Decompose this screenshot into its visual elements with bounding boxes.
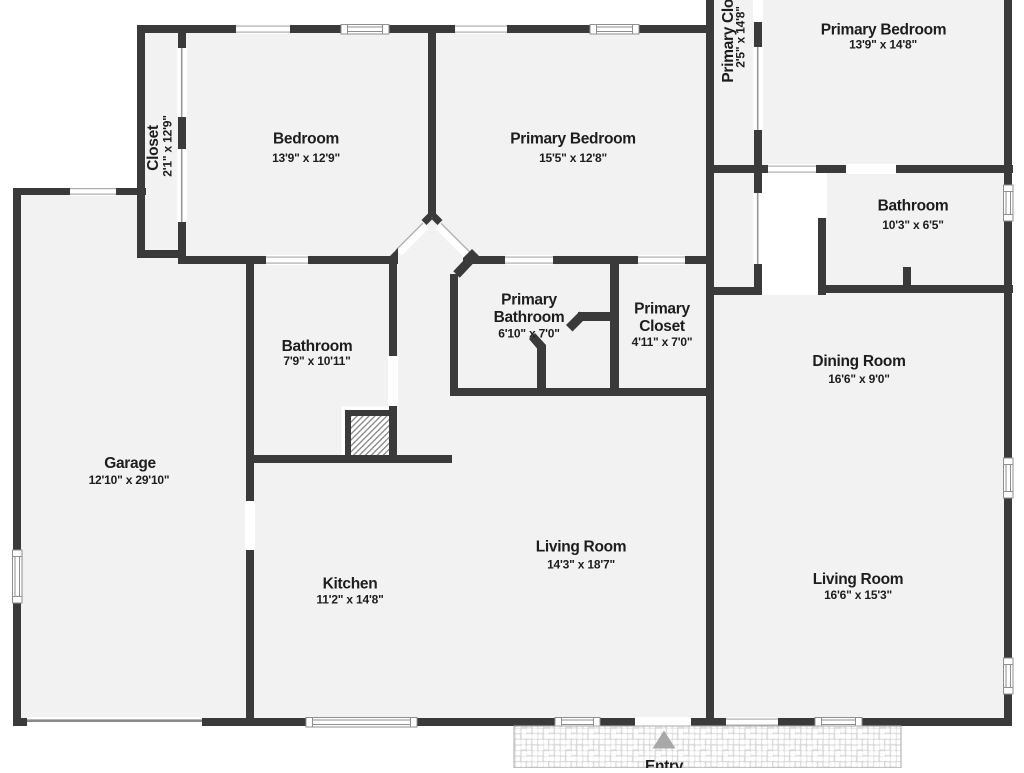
svg-text:Bathroom: Bathroom <box>878 198 949 215</box>
svg-text:Primary: Primary <box>501 292 557 309</box>
svg-text:Living Room: Living Room <box>536 539 627 556</box>
svg-text:Closet: Closet <box>145 125 162 171</box>
svg-text:10'3" x 6'5": 10'3" x 6'5" <box>882 218 943 232</box>
svg-text:16'6" x 15'3": 16'6" x 15'3" <box>824 588 892 602</box>
svg-text:6'10" x 7'0": 6'10" x 7'0" <box>498 327 559 341</box>
svg-text:Bedroom: Bedroom <box>273 131 339 148</box>
svg-text:13'9" x 14'8": 13'9" x 14'8" <box>849 38 917 52</box>
svg-text:Primary Bedroom: Primary Bedroom <box>821 22 947 39</box>
svg-text:Bathroom: Bathroom <box>282 338 353 355</box>
svg-text:2'5" x 14'8": 2'5" x 14'8" <box>734 6 748 67</box>
svg-text:14'3" x 18'7": 14'3" x 18'7" <box>547 558 615 572</box>
svg-text:2'1" x 12'9": 2'1" x 12'9" <box>161 115 175 176</box>
svg-text:Dining Room: Dining Room <box>812 353 905 370</box>
svg-text:Kitchen: Kitchen <box>323 576 378 593</box>
svg-text:15'5" x 12'8": 15'5" x 12'8" <box>539 151 607 165</box>
svg-text:Garage: Garage <box>104 455 156 472</box>
svg-text:Living Room: Living Room <box>813 571 904 588</box>
svg-text:Bathroom: Bathroom <box>494 309 565 326</box>
svg-text:16'6" x 9'0": 16'6" x 9'0" <box>828 372 889 386</box>
svg-text:4'11" x 7'0": 4'11" x 7'0" <box>632 335 693 349</box>
svg-text:Closet: Closet <box>639 318 685 335</box>
svg-text:Primary: Primary <box>634 301 690 318</box>
svg-text:13'9" x 12'9": 13'9" x 12'9" <box>272 151 340 165</box>
svg-text:7'9" x 10'11": 7'9" x 10'11" <box>283 354 350 368</box>
svg-text:11'2" x 14'8": 11'2" x 14'8" <box>316 593 383 607</box>
svg-text:Entry: Entry <box>645 758 684 768</box>
svg-text:Primary Bedroom: Primary Bedroom <box>510 131 636 148</box>
svg-text:12'10" x 29'10": 12'10" x 29'10" <box>89 473 170 487</box>
